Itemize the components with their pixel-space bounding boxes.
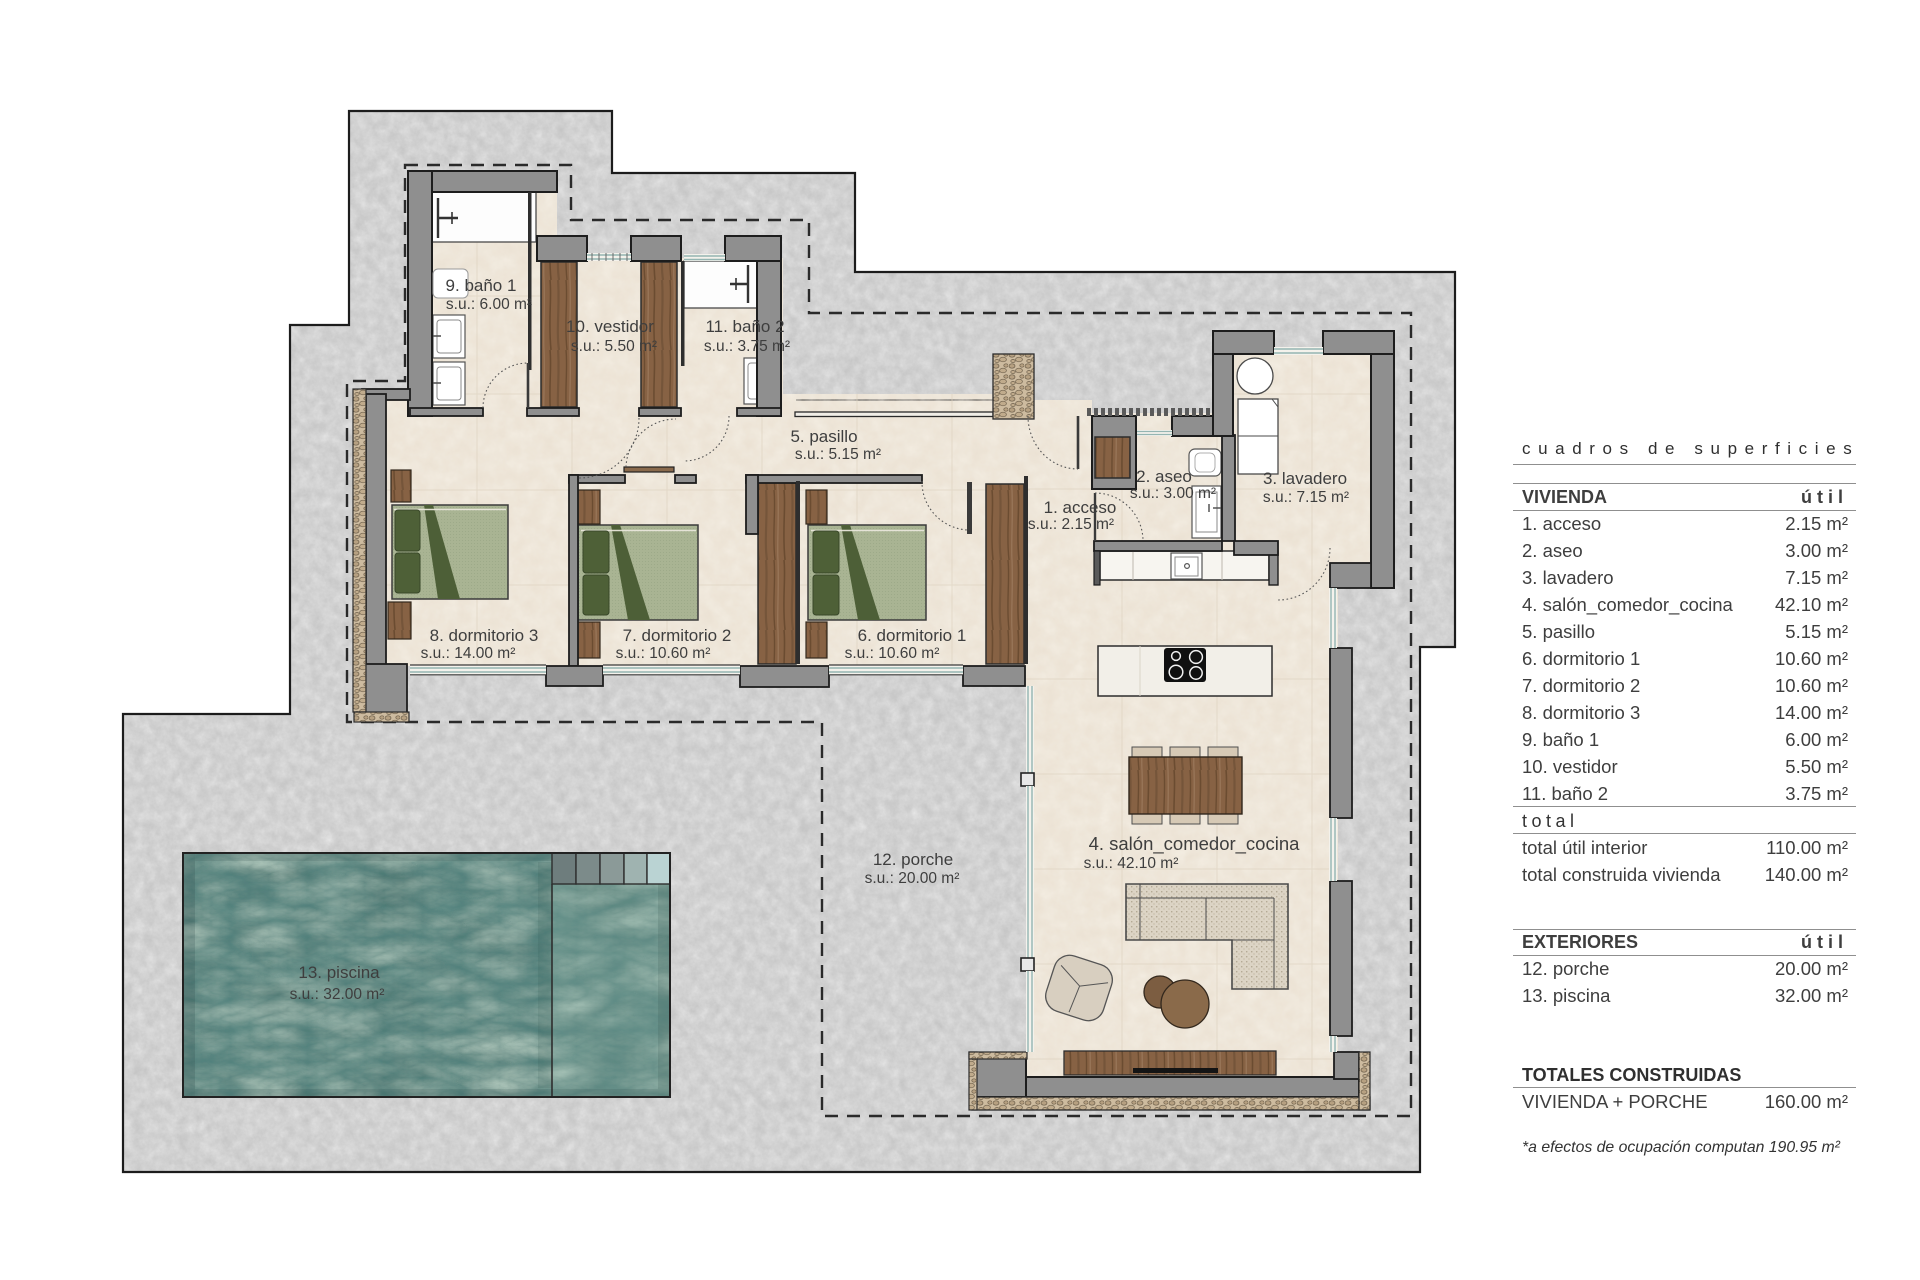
svg-text:1. acceso: 1. acceso [1522,513,1601,534]
svg-text:VIVIENDA: VIVIENDA [1522,487,1607,507]
svg-text:útil: útil [1801,932,1848,952]
svg-text:VIVIENDA + PORCHE: VIVIENDA + PORCHE [1522,1091,1708,1112]
svg-text:8. dormitorio 3: 8. dormitorio 3 [1522,702,1640,723]
svg-text:10. vestidor: 10. vestidor [566,317,654,336]
svg-text:3.75 m²: 3.75 m² [1785,783,1848,804]
svg-text:6.00 m²: 6.00 m² [1785,729,1848,750]
svg-text:total: total [1522,811,1579,831]
svg-text:7. dormitorio 2: 7. dormitorio 2 [1522,675,1640,696]
svg-text:TOTALES CONSTRUIDAS: TOTALES CONSTRUIDAS [1522,1065,1741,1085]
svg-text:2. aseo: 2. aseo [1522,540,1583,561]
svg-text:total útil interior: total útil interior [1522,837,1647,858]
svg-text:s.u.: 10.60 m²: s.u.: 10.60 m² [845,645,940,662]
svg-text:7. dormitorio 2: 7. dormitorio 2 [623,626,732,645]
svg-text:EXTERIORES: EXTERIORES [1522,932,1638,952]
svg-text:10. vestidor: 10. vestidor [1522,756,1618,777]
svg-text:32.00 m²: 32.00 m² [1775,985,1848,1006]
svg-text:9. baño 1: 9. baño 1 [1522,729,1599,750]
svg-text:s.u.: 6.00 m²: s.u.: 6.00 m² [446,296,532,313]
svg-text:s.u.: 2.15 m²: s.u.: 2.15 m² [1028,516,1114,533]
svg-text:20.00 m²: 20.00 m² [1775,958,1848,979]
svg-text:s.u.: 3.75 m²: s.u.: 3.75 m² [704,338,790,355]
svg-text:14.00 m²: 14.00 m² [1775,702,1848,723]
svg-text:11. baño 2: 11. baño 2 [705,317,784,336]
svg-text:s.u.: 14.00 m²: s.u.: 14.00 m² [421,645,516,662]
svg-text:5. pasillo: 5. pasillo [1522,621,1595,642]
svg-text:4. salón_comedor_cocina: 4. salón_comedor_cocina [1089,833,1301,855]
svg-text:s.u.: 10.60 m²: s.u.: 10.60 m² [616,645,711,662]
svg-text:cuadros de superficies: cuadros de superficies [1522,439,1859,458]
svg-text:140.00 m²: 140.00 m² [1765,864,1848,885]
svg-text:3. lavadero: 3. lavadero [1263,469,1347,488]
svg-text:4. salón_comedor_cocina: 4. salón_comedor_cocina [1522,594,1734,616]
svg-text:9. baño 1: 9. baño 1 [446,276,517,295]
svg-text:s.u.: 42.10 m²: s.u.: 42.10 m² [1084,855,1179,872]
svg-text:5.50 m²: 5.50 m² [1785,756,1848,777]
svg-text:12. porche: 12. porche [873,850,953,869]
svg-text:total construida vivienda: total construida vivienda [1522,864,1721,885]
svg-text:*a efectos de ocupación comput: *a efectos de ocupación computan 190.95 … [1522,1139,1841,1156]
svg-text:42.10 m²: 42.10 m² [1775,594,1848,615]
svg-text:s.u.: 3.00 m²: s.u.: 3.00 m² [1130,485,1216,502]
svg-text:11. baño 2: 11. baño 2 [1522,783,1608,804]
svg-text:2. aseo: 2. aseo [1136,467,1192,486]
svg-text:10.60 m²: 10.60 m² [1775,675,1848,696]
svg-text:2.15 m²: 2.15 m² [1785,513,1848,534]
svg-text:5. pasillo: 5. pasillo [790,427,857,446]
svg-text:12. porche: 12. porche [1522,958,1609,979]
svg-text:s.u.: 32.00 m²: s.u.: 32.00 m² [290,986,385,1003]
svg-text:s.u.: 5.50 m²: s.u.: 5.50 m² [571,338,657,355]
svg-text:13. piscina: 13. piscina [1522,985,1611,1006]
svg-text:6. dormitorio 1: 6. dormitorio 1 [1522,648,1640,669]
svg-text:110.00 m²: 110.00 m² [1766,837,1848,858]
svg-text:s.u.: 20.00 m²: s.u.: 20.00 m² [865,870,960,887]
svg-text:5.15 m²: 5.15 m² [1785,621,1848,642]
svg-text:8. dormitorio 3: 8. dormitorio 3 [430,626,539,645]
svg-text:útil: útil [1801,487,1848,507]
svg-text:s.u.: 7.15 m²: s.u.: 7.15 m² [1263,489,1349,506]
svg-text:13. piscina: 13. piscina [298,963,380,982]
svg-text:3.00 m²: 3.00 m² [1785,540,1848,561]
svg-text:7.15 m²: 7.15 m² [1785,567,1848,588]
svg-text:10.60 m²: 10.60 m² [1775,648,1848,669]
svg-text:3. lavadero: 3. lavadero [1522,567,1614,588]
svg-text:s.u.: 5.15 m²: s.u.: 5.15 m² [795,446,881,463]
svg-text:160.00 m²: 160.00 m² [1765,1091,1848,1112]
svg-text:1. acceso: 1. acceso [1044,498,1117,517]
svg-text:6. dormitorio 1: 6. dormitorio 1 [858,626,967,645]
